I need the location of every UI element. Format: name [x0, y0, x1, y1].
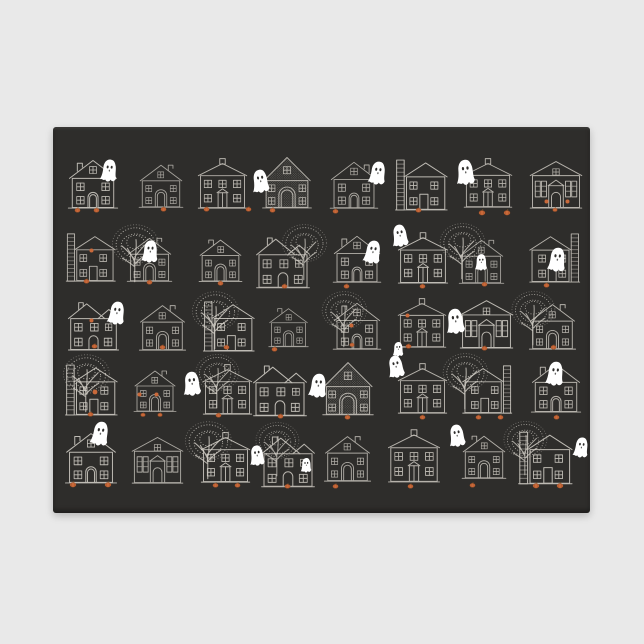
pumpkin	[476, 414, 481, 419]
bare-tree	[192, 292, 238, 349]
pumpkin	[88, 411, 93, 416]
pumpkin	[158, 412, 163, 416]
window-glow	[138, 393, 142, 397]
ghost	[89, 420, 110, 447]
pumpkin	[479, 209, 485, 215]
window-glow	[155, 393, 159, 397]
pumpkin	[544, 282, 549, 287]
product-photo-page: { "meta": { "description": "Product phot…	[0, 0, 644, 644]
pattern-layer	[63, 157, 589, 488]
pumpkin	[416, 207, 421, 212]
pumpkin	[92, 343, 97, 348]
house-chimney-column	[395, 160, 447, 210]
house-gable	[330, 162, 378, 208]
pumpkin	[333, 483, 338, 488]
ghost	[182, 371, 202, 397]
pumpkin	[278, 413, 283, 418]
ghost	[445, 308, 466, 335]
pumpkin	[282, 283, 287, 288]
ghost	[248, 445, 265, 467]
window-glow	[545, 200, 549, 204]
ghost	[390, 224, 409, 248]
pumpkin	[504, 209, 510, 215]
window-glow	[406, 314, 410, 318]
window-glow	[93, 390, 98, 395]
house-portico	[530, 162, 582, 208]
pumpkin	[498, 414, 503, 419]
house-chimney-column	[66, 234, 115, 281]
ghost	[455, 159, 475, 186]
halloween-house-pattern	[53, 127, 590, 513]
pumpkin	[246, 206, 251, 211]
house-arch-door	[269, 309, 308, 347]
pumpkin	[147, 279, 152, 284]
house-colonial	[198, 159, 246, 209]
ghost	[100, 159, 118, 183]
ghost	[106, 300, 126, 325]
house-stippled	[323, 363, 373, 415]
window-glow	[90, 319, 94, 323]
house-portico	[132, 438, 183, 484]
house-arch-door	[199, 240, 242, 281]
pumpkin	[408, 483, 413, 488]
pumpkin	[235, 482, 240, 487]
house-colonial	[388, 430, 439, 482]
pumpkin	[272, 346, 277, 351]
doormat	[53, 127, 590, 513]
ghost	[308, 373, 328, 399]
pumpkin	[406, 343, 411, 348]
pumpkin	[420, 414, 425, 419]
ghost	[386, 354, 406, 379]
ghost	[301, 458, 312, 472]
pumpkin	[213, 482, 218, 487]
house-arch-door	[324, 437, 370, 482]
bare-tree	[282, 225, 326, 280]
pumpkin	[285, 483, 290, 488]
window-glow	[566, 200, 570, 204]
house-double-gable	[254, 366, 307, 416]
pumpkin	[84, 278, 89, 283]
pumpkin	[482, 345, 487, 350]
house-arch-door	[462, 436, 506, 478]
pumpkin	[470, 482, 475, 487]
image-background	[0, 0, 644, 644]
pumpkin	[551, 344, 556, 349]
pumpkin	[160, 344, 165, 349]
window-glow	[350, 324, 354, 328]
house-arch-door	[139, 306, 185, 351]
ghost	[447, 424, 466, 448]
pumpkin	[344, 283, 349, 288]
house-portico	[460, 301, 512, 348]
ghost	[367, 160, 387, 185]
house-colonial	[398, 299, 446, 348]
bare-tree	[185, 422, 231, 479]
house-arch-door	[134, 371, 176, 412]
pumpkin	[482, 281, 487, 286]
house-colonial	[201, 433, 249, 483]
bare-tree	[196, 354, 239, 407]
pumpkin	[554, 414, 559, 419]
window-glow	[90, 249, 94, 253]
bare-tree	[63, 355, 109, 412]
house-stippled	[263, 157, 312, 207]
pumpkin	[420, 283, 425, 288]
pumpkin	[141, 412, 146, 416]
house-colonial	[398, 364, 446, 414]
house-arch-door	[529, 305, 575, 350]
pumpkin	[333, 208, 338, 213]
ghost	[572, 436, 589, 458]
ghost	[545, 361, 565, 387]
bare-tree	[504, 421, 547, 474]
house-arch-door	[139, 165, 183, 207]
bare-tree	[256, 422, 299, 475]
ghost	[393, 342, 404, 356]
house-gable	[333, 303, 381, 349]
ghost	[250, 169, 270, 194]
